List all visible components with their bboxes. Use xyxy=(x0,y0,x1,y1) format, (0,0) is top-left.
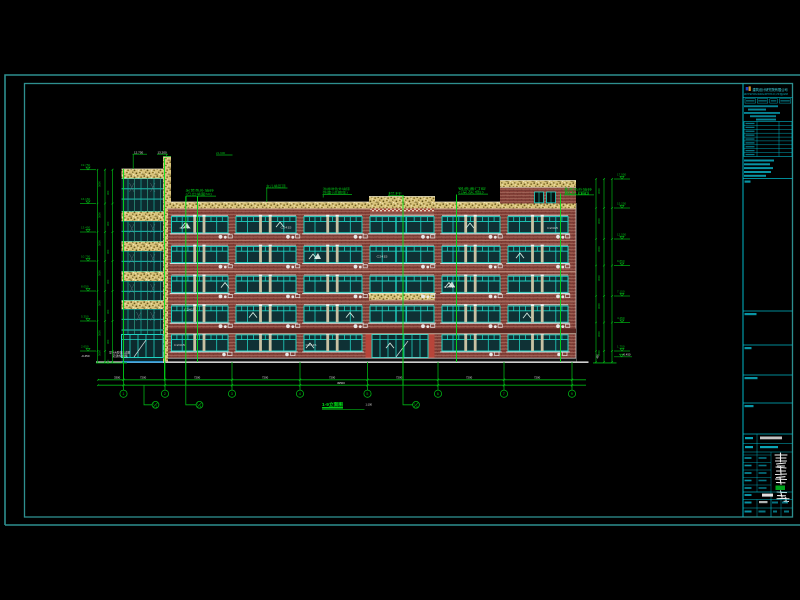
svg-text:3600: 3600 xyxy=(98,181,102,187)
svg-text:1: 1 xyxy=(413,401,415,405)
svg-text:19.750: 19.750 xyxy=(81,163,91,167)
svg-text:7: 7 xyxy=(503,392,505,396)
svg-text:5.350: 5.350 xyxy=(81,314,89,318)
svg-text:7.150: 7.150 xyxy=(617,289,625,293)
svg-text:7200: 7200 xyxy=(466,376,473,380)
svg-text:饰面(详图集): 饰面(详图集) xyxy=(323,190,349,195)
svg-text:5: 5 xyxy=(366,392,368,396)
svg-text:1-9立面图: 1-9立面图 xyxy=(322,401,343,408)
svg-text:9.850: 9.850 xyxy=(617,259,625,263)
svg-text:49500: 49500 xyxy=(337,381,345,385)
svg-text:1:100: 1:100 xyxy=(366,403,373,407)
svg-text:12.750: 12.750 xyxy=(134,150,144,154)
svg-text:15.250: 15.250 xyxy=(617,201,627,205)
svg-text:7200: 7200 xyxy=(396,376,403,380)
svg-text:栏杆: 栏杆 xyxy=(388,191,402,196)
svg-text:10.750: 10.750 xyxy=(81,254,91,258)
svg-text:3600: 3600 xyxy=(98,350,102,356)
svg-text:3: 3 xyxy=(231,392,233,396)
svg-text:C2415: C2415 xyxy=(174,343,185,347)
svg-text:8.050: 8.050 xyxy=(81,284,89,288)
svg-text:2.650: 2.650 xyxy=(81,344,89,348)
svg-text:1: 1 xyxy=(122,392,124,396)
svg-text:7200: 7200 xyxy=(262,376,269,380)
svg-text:C2415: C2415 xyxy=(547,226,558,230)
svg-text:6: 6 xyxy=(437,392,439,396)
svg-text:3300: 3300 xyxy=(114,376,121,380)
svg-text:-0.450: -0.450 xyxy=(81,354,90,358)
svg-text:见建施图集: 见建施图集 xyxy=(112,354,129,358)
svg-text:360: 360 xyxy=(106,309,110,314)
svg-text:C2415: C2415 xyxy=(377,255,388,259)
svg-text:1.750: 1.750 xyxy=(617,344,625,348)
svg-text:21.900: 21.900 xyxy=(216,151,226,155)
svg-text:C2415: C2415 xyxy=(281,226,292,230)
svg-text:-0.450: -0.450 xyxy=(623,353,631,357)
svg-text:13.200: 13.200 xyxy=(158,150,168,154)
svg-text:7200: 7200 xyxy=(194,376,201,380)
svg-text:360: 360 xyxy=(106,190,110,195)
svg-text:女儿墙压顶: 女儿墙压顶 xyxy=(266,183,286,188)
svg-text:3600: 3600 xyxy=(597,275,601,281)
svg-text:1: 1 xyxy=(153,401,155,405)
svg-text:360: 360 xyxy=(106,221,110,226)
svg-text:3600: 3600 xyxy=(98,240,102,246)
svg-text:7200: 7200 xyxy=(534,376,541,380)
svg-text:3600: 3600 xyxy=(98,330,102,336)
svg-text:360: 360 xyxy=(106,279,110,284)
svg-text:12.550: 12.550 xyxy=(617,232,627,236)
svg-text:(深灰色): (深灰色) xyxy=(458,189,484,194)
svg-text:贴面: 贴面 xyxy=(564,190,590,195)
svg-text:450: 450 xyxy=(597,354,600,359)
svg-text:7200: 7200 xyxy=(329,376,336,380)
svg-text:3600: 3600 xyxy=(98,270,102,276)
svg-text:4.450: 4.450 xyxy=(617,316,625,320)
svg-text:7200: 7200 xyxy=(140,376,147,380)
svg-text:3600: 3600 xyxy=(597,331,601,337)
svg-text:3600: 3600 xyxy=(597,188,601,194)
svg-text:360: 360 xyxy=(106,249,110,254)
svg-text:2: 2 xyxy=(164,392,166,396)
svg-text:(凸出墙面60): (凸出墙面60) xyxy=(186,191,213,196)
svg-text:建筑设计研究院有限公司: 建筑设计研究院有限公司 xyxy=(753,87,788,92)
svg-text:3600: 3600 xyxy=(98,212,102,218)
svg-text:4: 4 xyxy=(299,392,301,396)
svg-text:3600: 3600 xyxy=(597,246,601,252)
svg-text:360: 360 xyxy=(106,339,110,344)
svg-text:3600: 3600 xyxy=(597,303,601,309)
svg-text:16.150: 16.150 xyxy=(81,197,91,201)
svg-text:1: 1 xyxy=(197,401,199,405)
svg-text:13.450: 13.450 xyxy=(81,225,91,229)
svg-text:9: 9 xyxy=(571,392,573,396)
svg-text:17.950: 17.950 xyxy=(617,172,627,176)
svg-text:3600: 3600 xyxy=(597,218,601,224)
svg-text:3600: 3600 xyxy=(98,300,102,306)
svg-text:ARCHITECTURAL DESIGN+INSTITUTE: ARCHITECTURAL DESIGN+INSTITUTE CO.,LTD 甲… xyxy=(744,92,788,96)
svg-text:360: 360 xyxy=(106,359,110,364)
